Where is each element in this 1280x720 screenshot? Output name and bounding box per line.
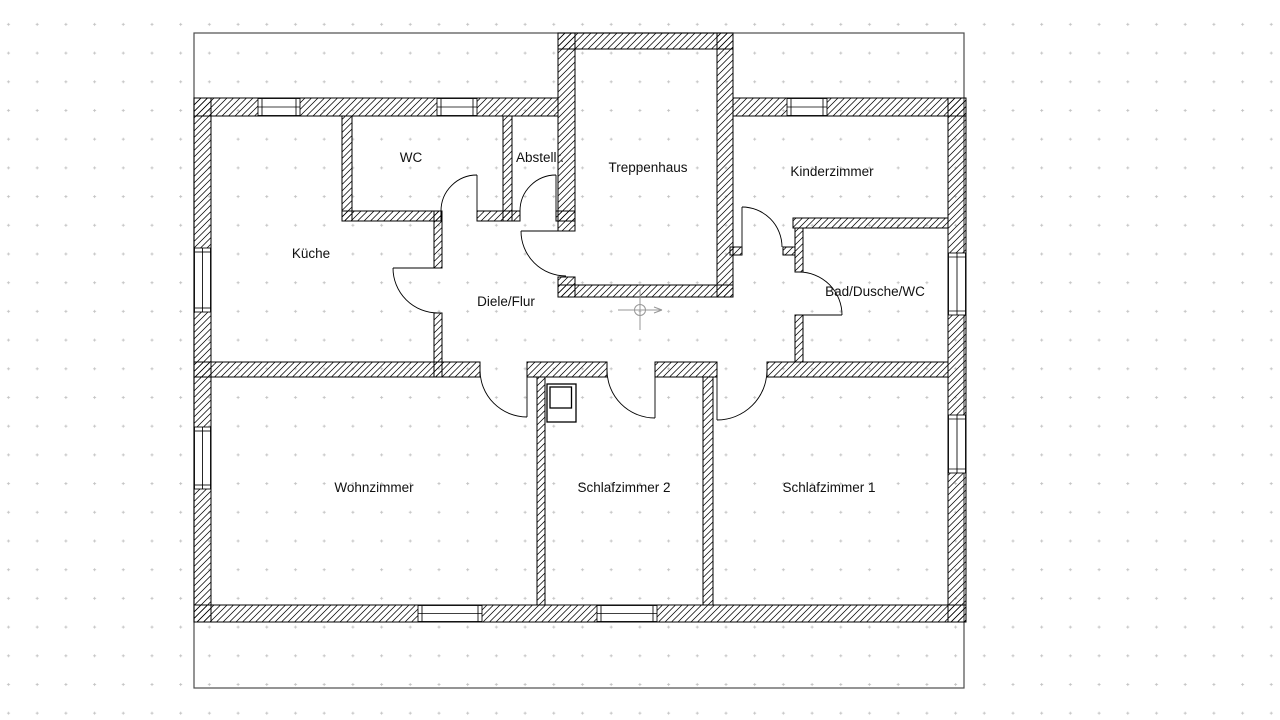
- wall-stair-east: [717, 33, 733, 297]
- wall-hall-south-c: [655, 362, 717, 377]
- room-label-wc: WC: [400, 150, 423, 165]
- wall-hall-south-b: [527, 362, 607, 377]
- wall-stair-top: [558, 33, 733, 49]
- wall-bad-west-upper: [795, 228, 803, 272]
- room-label-diele-flur: Diele/Flur: [477, 294, 535, 309]
- wall-wc-south-c: [556, 211, 575, 221]
- wall-hall-south-a: [194, 362, 480, 377]
- room-label-schlafzimmer1: Schlafzimmer 1: [782, 480, 875, 495]
- wall-top-right: [733, 98, 966, 116]
- room-label-schlafzimmer2: Schlafzimmer 2: [577, 480, 670, 495]
- wall-wc-abstell-divider: [503, 116, 512, 221]
- window-wohnzimmer-south: [418, 606, 482, 622]
- wall-stair-south: [558, 285, 733, 297]
- wall-right: [948, 98, 966, 622]
- room-label-kinderzimmer: Kinderzimmer: [790, 164, 874, 179]
- window-schlafzimmer2-south: [597, 606, 657, 622]
- room-label-kueche: Küche: [292, 246, 330, 261]
- wall-kinder-door-stub-east: [783, 247, 795, 255]
- room-label-treppenhaus: Treppenhaus: [608, 160, 687, 175]
- wall-bottom: [194, 605, 966, 622]
- wall-left: [194, 98, 211, 622]
- wall-wohn-schlaf2-divider: [537, 377, 545, 605]
- window-kinderzimmer-north: [787, 99, 827, 116]
- wall-stair-west: [558, 33, 575, 231]
- wall-kueche-hall-upper: [434, 211, 442, 268]
- window-wc-north: [437, 99, 477, 116]
- window-kueche-west: [195, 248, 211, 312]
- wall-kinder-door-stub-west: [730, 247, 742, 255]
- room-label-wohnzimmer: Wohnzimmer: [334, 480, 414, 495]
- wall-kinder-south: [793, 218, 948, 228]
- wall-bad-west-lower: [795, 315, 803, 362]
- floor-plan-canvas: Küche WC Abstellr. Treppenhaus Kinderzim…: [0, 0, 1280, 720]
- wall-hall-south-d: [767, 362, 948, 377]
- wall-wc-south-a: [342, 211, 441, 221]
- window-wohnzimmer-west: [195, 427, 211, 489]
- wall-wc-west: [342, 116, 352, 221]
- chimney-symbol: [547, 384, 576, 422]
- window-bad-east: [949, 253, 966, 315]
- room-label-abstellraum: Abstellr.: [516, 150, 564, 165]
- room-label-bad: Bad/Dusche/WC: [825, 284, 925, 299]
- wall-wc-south-b: [477, 211, 520, 221]
- window-kueche-north: [258, 99, 300, 116]
- wall-schlaf2-schlaf1-divider: [703, 377, 713, 605]
- wall-top-left: [194, 98, 558, 116]
- window-schlafzimmer1-east: [949, 415, 966, 473]
